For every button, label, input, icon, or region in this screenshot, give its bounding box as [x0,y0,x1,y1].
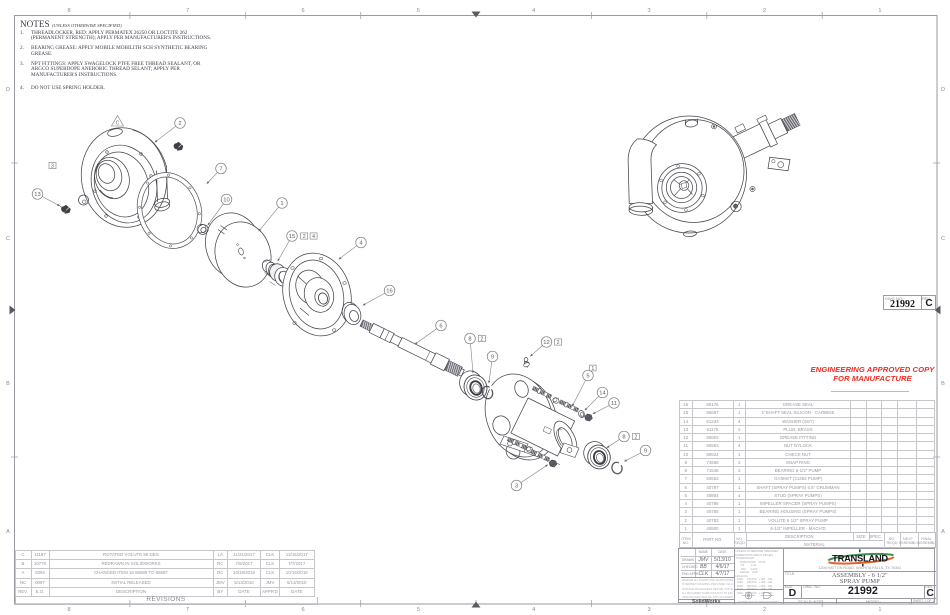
svg-text:4: 4 [312,234,315,240]
svg-text:C: C [116,120,120,126]
svg-text:9: 9 [644,449,647,455]
svg-text:7: 7 [219,167,222,173]
svg-text:12: 12 [543,340,549,346]
svg-text:2: 2 [634,434,637,440]
svg-text:13: 13 [34,192,40,198]
svg-text:2: 2 [557,340,560,346]
svg-text:14: 14 [599,391,606,397]
svg-text:2: 2 [480,336,483,342]
svg-text:6: 6 [439,324,442,330]
svg-text:10: 10 [223,198,229,204]
svg-text:3: 3 [51,163,54,169]
svg-text:1: 1 [280,201,283,207]
svg-text:5: 5 [586,374,589,380]
svg-text:2: 2 [303,234,306,240]
svg-text:3: 3 [515,484,518,490]
svg-text:TRANSLAND: TRANSLAND [833,553,889,564]
svg-text:9: 9 [491,355,494,361]
svg-text:11: 11 [611,401,617,407]
svg-text:2: 2 [178,121,181,127]
svg-text:8: 8 [468,337,471,343]
svg-text:15: 15 [289,234,295,240]
svg-text:8: 8 [622,435,625,441]
svg-text:16: 16 [386,289,392,295]
svg-text:1: 1 [591,366,594,372]
